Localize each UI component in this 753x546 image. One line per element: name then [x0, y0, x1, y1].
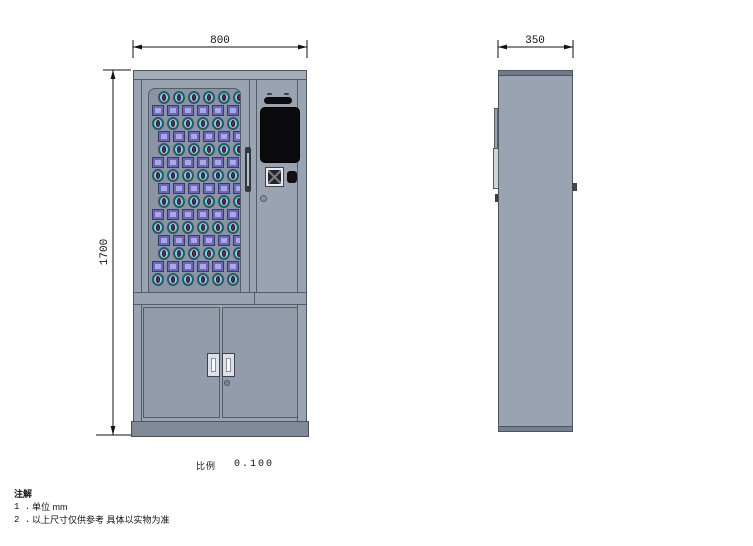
product-slot-box [227, 105, 239, 116]
product-slot-oval [197, 221, 209, 234]
side-bottom-strip [499, 426, 572, 431]
product-slot-box [182, 157, 194, 168]
product-slot-oval [197, 273, 209, 286]
product-slot-oval [167, 221, 179, 234]
product-slot-oval [158, 195, 170, 208]
handle-cutout [211, 358, 216, 372]
note-number: 1 . [14, 501, 32, 514]
side-handle-bracket [493, 148, 499, 189]
product-slot-box [167, 261, 179, 272]
product-grid-row [149, 261, 240, 286]
product-slot-oval [218, 143, 230, 156]
product-slot-box [158, 235, 170, 246]
scale-note: 比例 0.100 [196, 459, 274, 472]
product-slot-oval [233, 91, 241, 104]
product-slot-oval [227, 221, 239, 234]
product-slot-box [173, 131, 185, 142]
note-item: 2 . 以上尺寸仅供参考 具体以实物为准 [14, 514, 170, 527]
product-slot-oval [227, 273, 239, 286]
product-slot-oval [182, 169, 194, 182]
product-grid-row [149, 105, 240, 130]
scanner-window-icon [268, 170, 281, 184]
note-number: 2 . [14, 514, 32, 527]
product-slot-box [212, 157, 224, 168]
front-base-plinth [131, 421, 309, 437]
upper-door-handle[interactable] [245, 147, 251, 192]
dim-label-side-depth: 350 [525, 35, 545, 47]
product-grid-row [149, 91, 240, 104]
product-grid-row [149, 157, 240, 182]
product-slot-oval [227, 169, 239, 182]
product-slot-oval [173, 195, 185, 208]
front-view-cabinet [133, 70, 307, 422]
product-slot-oval [197, 117, 209, 130]
product-slot-box [158, 183, 170, 194]
product-slot-box [152, 157, 164, 168]
product-slot-box [227, 209, 239, 220]
handle-cutout [226, 358, 231, 372]
product-slot-box [218, 183, 230, 194]
product-slot-oval [212, 221, 224, 234]
product-slot-oval [203, 195, 215, 208]
product-slot-box [218, 235, 230, 246]
product-slot-oval [152, 273, 164, 286]
mid-band-divider-line [254, 293, 255, 304]
product-slot-box [167, 105, 179, 116]
product-slot-oval [158, 247, 170, 260]
drawing-canvas: 800 350 1700 [0, 0, 753, 546]
product-slot-box [197, 209, 209, 220]
product-slot-oval [188, 195, 200, 208]
qr-scanner[interactable] [265, 167, 284, 187]
product-slot-box [197, 105, 209, 116]
product-slot-box [233, 183, 241, 194]
dimension-front-width: 800 [133, 35, 307, 58]
product-slot-oval [188, 247, 200, 260]
product-slot-box [188, 235, 200, 246]
product-slot-box [152, 261, 164, 272]
product-slot-oval [158, 143, 170, 156]
product-slot-box [197, 261, 209, 272]
product-slot-box [173, 183, 185, 194]
product-slot-box [182, 261, 194, 272]
product-slot-box [203, 235, 215, 246]
product-slot-oval [173, 91, 185, 104]
product-slot-box [158, 131, 170, 142]
product-slot-box [152, 105, 164, 116]
panel-lock[interactable] [260, 195, 267, 202]
product-slot-oval [203, 247, 215, 260]
product-slot-oval [182, 221, 194, 234]
product-slot-oval [233, 195, 241, 208]
door-lock[interactable] [224, 380, 230, 386]
note-text: 单位 mm [32, 501, 68, 514]
product-slot-oval [188, 143, 200, 156]
product-grid-row [149, 235, 240, 260]
product-slot-oval [152, 221, 164, 234]
note-text: 以上尺寸仅供参考 具体以实物为准 [32, 514, 170, 527]
dimension-overlay: 800 350 1700 [0, 0, 753, 546]
dim-label-height: 1700 [99, 239, 111, 265]
product-window [148, 88, 241, 297]
side-view-cabinet [498, 70, 573, 432]
product-slot-oval [212, 273, 224, 286]
product-slot-oval [203, 91, 215, 104]
product-slot-oval [203, 143, 215, 156]
product-slot-oval [173, 247, 185, 260]
panel-button[interactable] [287, 171, 297, 183]
product-grid [149, 91, 240, 286]
product-slot-box [182, 209, 194, 220]
control-panel [249, 79, 301, 292]
product-slot-box [167, 209, 179, 220]
camera-bar [264, 97, 292, 104]
door-handle-left[interactable] [207, 353, 220, 377]
product-slot-box [233, 235, 241, 246]
product-slot-oval [212, 169, 224, 182]
product-slot-box [212, 261, 224, 272]
product-slot-box [212, 209, 224, 220]
product-slot-oval [233, 247, 241, 260]
product-slot-oval [218, 195, 230, 208]
product-slot-oval [182, 273, 194, 286]
product-slot-oval [182, 117, 194, 130]
product-slot-box [227, 261, 239, 272]
note-item: 1 . 单位 mm [14, 501, 170, 514]
product-slot-box [173, 235, 185, 246]
product-slot-box [167, 157, 179, 168]
product-slot-box [227, 157, 239, 168]
product-slot-oval [227, 117, 239, 130]
touch-screen[interactable] [260, 107, 300, 163]
product-slot-box [233, 131, 241, 142]
dimension-height: 1700 [96, 70, 131, 435]
lower-door-section [141, 304, 298, 422]
door-handle-right[interactable] [222, 353, 235, 377]
product-slot-oval [158, 91, 170, 104]
side-rear-nub [572, 183, 577, 191]
side-hinge-nub [495, 194, 498, 202]
product-grid-row [149, 209, 240, 234]
product-slot-oval [173, 143, 185, 156]
product-slot-oval [152, 169, 164, 182]
product-slot-oval [188, 91, 200, 104]
product-slot-box [212, 105, 224, 116]
product-slot-oval [218, 247, 230, 260]
scale-value: 0.100 [234, 459, 274, 472]
product-slot-box [182, 105, 194, 116]
product-slot-box [197, 157, 209, 168]
product-slot-oval [167, 169, 179, 182]
handle-grip [247, 153, 249, 186]
product-slot-box [188, 183, 200, 194]
notes-title: 注解 [14, 488, 170, 501]
product-slot-oval [197, 169, 209, 182]
product-grid-row [149, 131, 240, 156]
dim-label-front-width: 800 [210, 35, 230, 47]
product-slot-oval [167, 273, 179, 286]
notes-block: 注解 1 . 单位 mm 2 . 以上尺寸仅供参考 具体以实物为准 [14, 488, 170, 527]
product-slot-box [203, 131, 215, 142]
product-grid-row [149, 183, 240, 208]
product-slot-oval [152, 117, 164, 130]
product-slot-oval [233, 143, 241, 156]
panel-divider-line [256, 79, 257, 292]
scale-label: 比例 [196, 459, 216, 472]
product-slot-oval [218, 91, 230, 104]
product-slot-box [152, 209, 164, 220]
product-slot-oval [212, 117, 224, 130]
side-top-strip [499, 71, 572, 76]
product-slot-oval [167, 117, 179, 130]
product-slot-box [218, 131, 230, 142]
product-slot-box [188, 131, 200, 142]
dimension-side-depth: 350 [498, 35, 573, 58]
product-slot-box [203, 183, 215, 194]
